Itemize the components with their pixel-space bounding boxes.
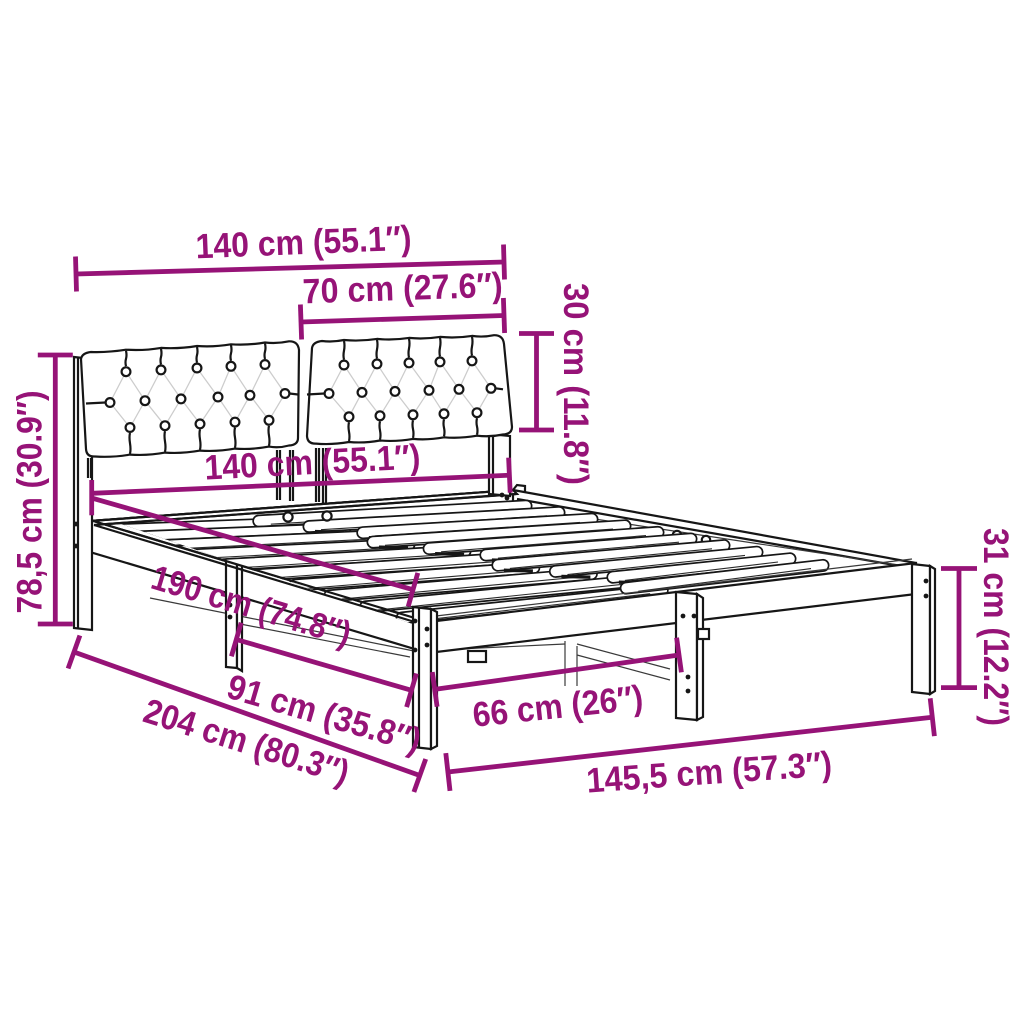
svg-text:31 cm (12.2″): 31 cm (12.2″) bbox=[976, 528, 1015, 726]
svg-text:78,5 cm (30.9″): 78,5 cm (30.9″) bbox=[11, 391, 50, 614]
svg-text:66 cm (26″): 66 cm (26″) bbox=[471, 678, 645, 735]
svg-text:30 cm (11.8″): 30 cm (11.8″) bbox=[556, 283, 595, 485]
svg-text:70 cm (27.6″): 70 cm (27.6″) bbox=[302, 266, 503, 312]
svg-text:140 cm (55.1″): 140 cm (55.1″) bbox=[195, 219, 412, 267]
